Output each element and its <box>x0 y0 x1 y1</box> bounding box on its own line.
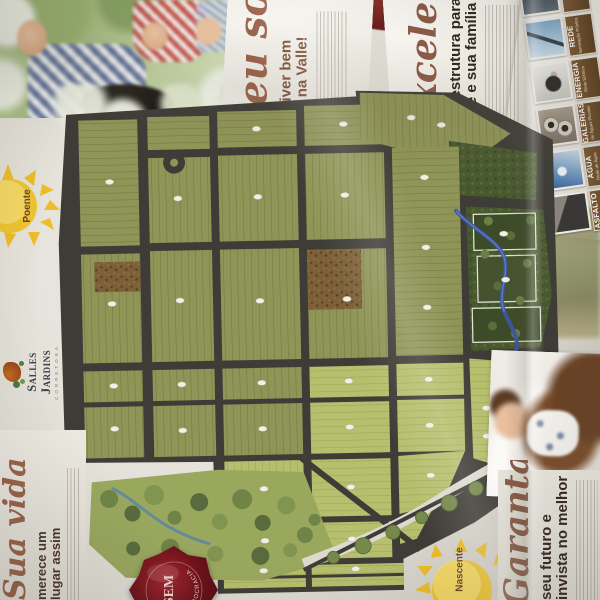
promo-invest-paragraph <box>576 480 598 600</box>
logo-subtitle: CORRETORA <box>53 331 60 413</box>
sun-nascente-label: Nascente <box>455 546 470 594</box>
logo-tree-icon <box>3 360 25 384</box>
promo-invest-line1: seu futuro e <box>539 460 555 600</box>
sun-poente-label: Poente <box>22 184 36 228</box>
promo-life-paragraph <box>67 468 80 600</box>
promo-life: Sua vida merece um lugar assim <box>0 454 80 600</box>
promo-invest: Garanta seu futuro e invista no melhor <box>503 460 600 600</box>
developer-logo: Salles Jardins CORRETORA <box>3 331 59 413</box>
promo-life-line2: lugar assim <box>49 454 63 600</box>
wax-seal: SEM BUROCRACIA <box>127 543 221 600</box>
patterned-top <box>526 409 580 457</box>
promo-invest-script: Garanta <box>503 460 537 600</box>
promo-life-line1: merece um <box>35 454 49 600</box>
promo-life-script: Sua vida <box>0 454 33 600</box>
promo-invest-line2: invista no melhor <box>555 460 571 600</box>
seal-line1: SEM <box>162 575 177 600</box>
brochure-photo: Seu sonho de viver bem está na Valle! Ex… <box>0 0 600 600</box>
logo-name: Salles Jardins <box>25 331 53 413</box>
